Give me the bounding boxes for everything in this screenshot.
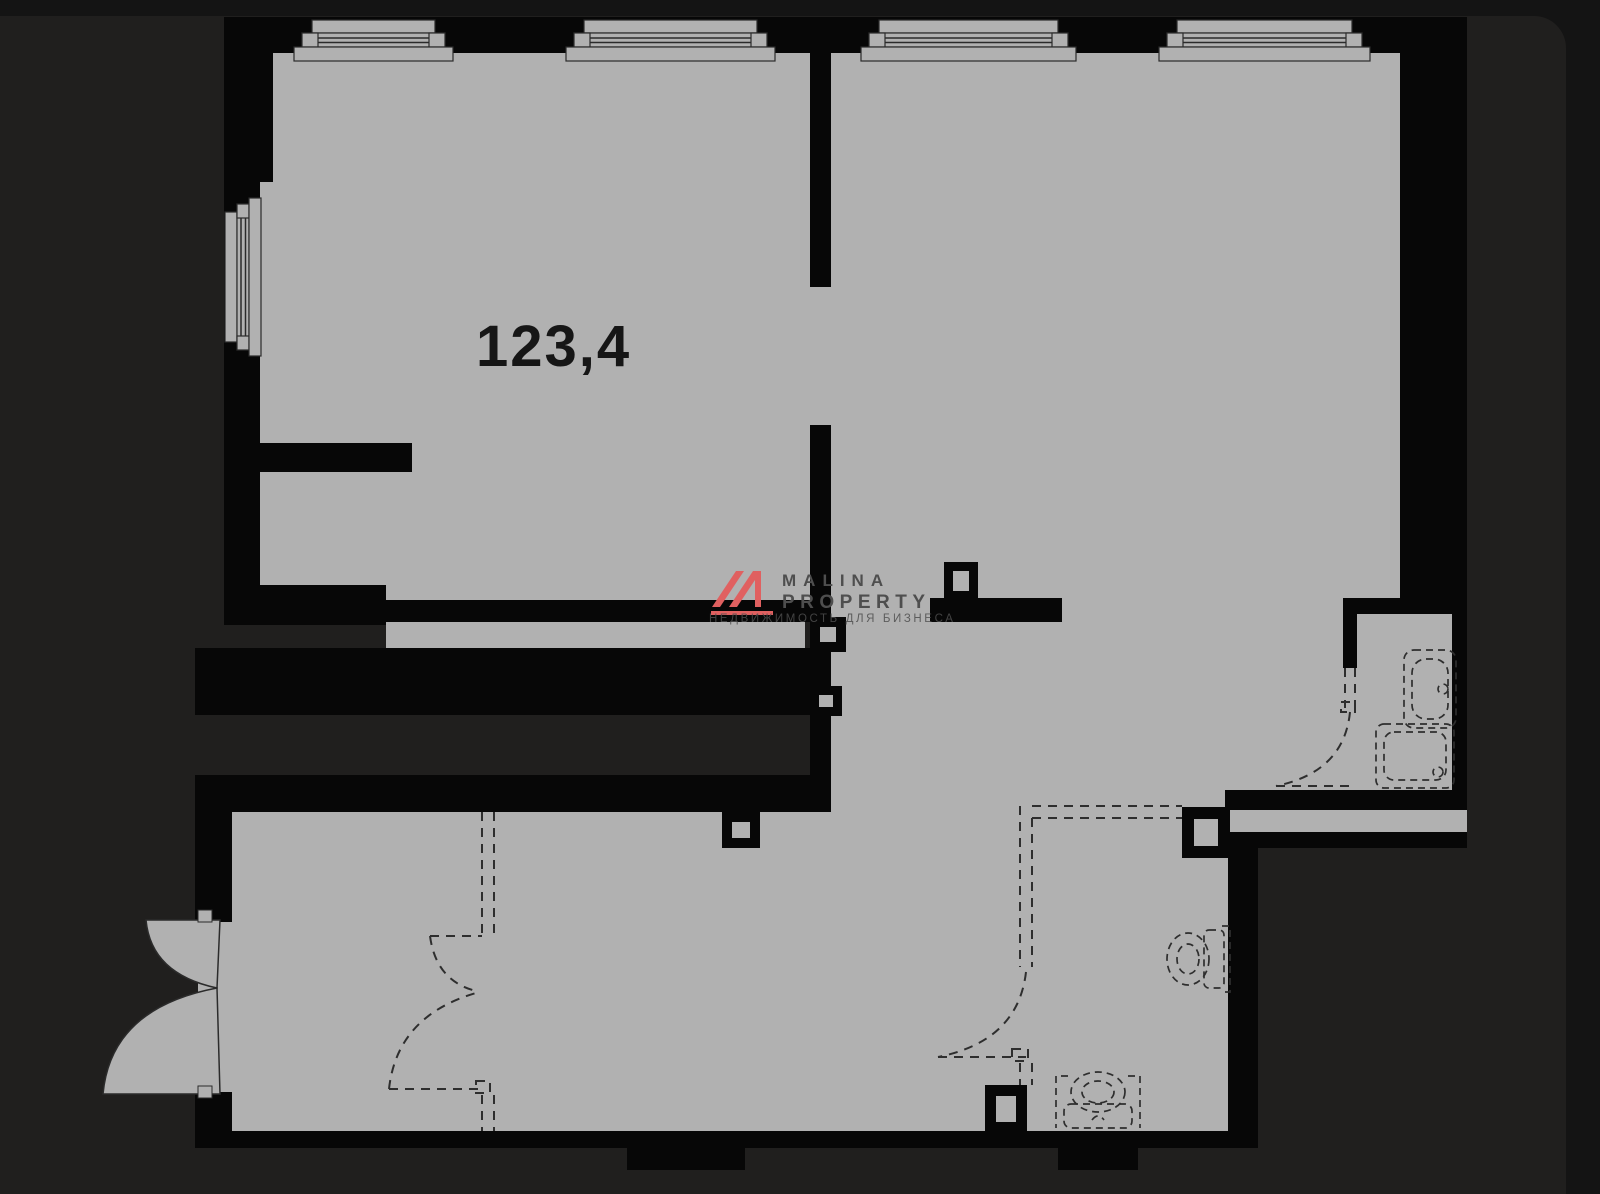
watermark-brand-line1: MALINA bbox=[782, 571, 890, 590]
floor-wall-opening bbox=[810, 287, 831, 425]
jamb-wc-bottom bbox=[985, 1085, 1027, 1133]
window-icon bbox=[294, 20, 453, 61]
wall-bathroom-bottom bbox=[1225, 790, 1467, 810]
window-icon bbox=[1159, 20, 1370, 61]
wall-left-upper bbox=[224, 17, 273, 182]
wall-niche-bottom bbox=[1230, 832, 1467, 848]
wall-stub bbox=[260, 443, 412, 472]
jamb-lowerroom-top bbox=[722, 812, 760, 848]
floor-open-area-upper bbox=[831, 52, 1400, 614]
column-block bbox=[944, 562, 978, 600]
floor-open-area-middle bbox=[831, 598, 1343, 812]
floor-open-area-lower bbox=[232, 812, 1228, 1131]
wall-lowerroom-top bbox=[195, 775, 810, 812]
wall-bottom bbox=[195, 1131, 1258, 1148]
wall-room-bottom bbox=[224, 585, 386, 625]
wall-bathroom-right bbox=[1452, 614, 1467, 790]
window-left-icon bbox=[225, 198, 261, 356]
watermark-tagline: НЕДВИЖИМОСТЬ ДЛЯ БИЗНЕСА bbox=[709, 613, 956, 625]
floorplan-drawing: 123,4 MALINA PROPERTY НЕДВИЖИМОСТЬ ДЛЯ Б… bbox=[0, 0, 1600, 1194]
window-icon bbox=[861, 20, 1076, 61]
wall-bottom-tab-2 bbox=[1058, 1148, 1138, 1170]
wall-thick-band bbox=[195, 648, 810, 715]
door-swing-icon bbox=[146, 920, 220, 988]
wall-right bbox=[1400, 17, 1467, 614]
jamb-corridor-2 bbox=[810, 686, 842, 716]
floor-strip bbox=[386, 622, 805, 648]
wall-entrance-upper bbox=[195, 812, 232, 922]
door-frame-cap bbox=[198, 1086, 212, 1098]
floor-niche-strip bbox=[1230, 810, 1467, 832]
watermark-brand-line2: PROPERTY bbox=[782, 592, 931, 613]
area-label: 123,4 bbox=[476, 314, 631, 379]
window-icon bbox=[566, 20, 775, 61]
entrance-door bbox=[103, 910, 220, 1098]
door-frame-cap bbox=[198, 910, 212, 922]
wall-bathroom-left bbox=[1343, 598, 1357, 668]
wall-middle-upper bbox=[810, 52, 831, 287]
wall-right-lower bbox=[1228, 840, 1258, 1148]
screenshot-stage: 123,4 MALINA PROPERTY НЕДВИЖИМОСТЬ ДЛЯ Б… bbox=[0, 0, 1600, 1194]
jamb-wc-right bbox=[1182, 807, 1230, 858]
door-swing-icon bbox=[103, 988, 220, 1094]
wall-bottom-tab-1 bbox=[627, 1148, 745, 1170]
